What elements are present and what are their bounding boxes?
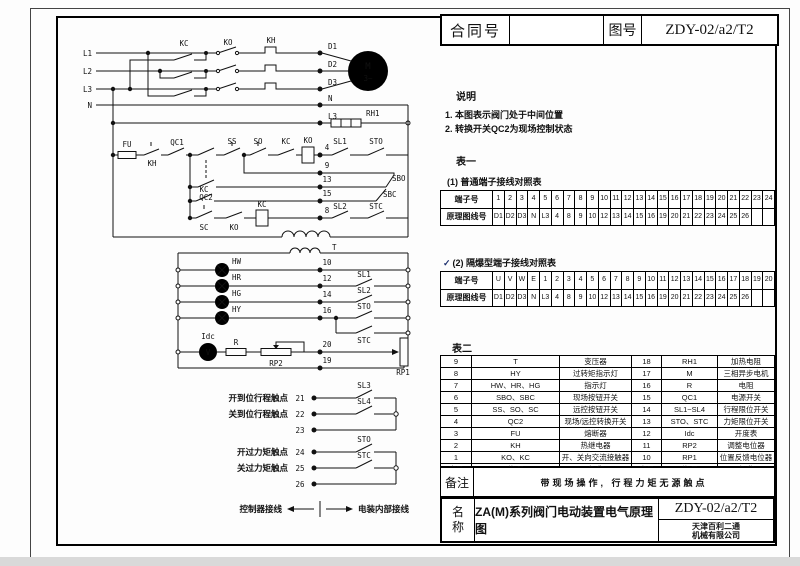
terminal-d2: D2 xyxy=(328,60,337,69)
table-cell: 19 xyxy=(704,191,716,208)
table-cell: 10 xyxy=(586,209,598,226)
label-kc-power: KC xyxy=(179,39,188,48)
terminal-26: 26 xyxy=(295,480,305,489)
table-cell: 13 xyxy=(610,290,622,307)
table-cell: 熔断器 xyxy=(559,428,631,439)
drawing-no-value: ZDY-02/a2/T2 xyxy=(642,16,777,44)
table-cell: 3 xyxy=(441,428,471,439)
table-cell: 12 xyxy=(631,428,661,439)
name-label: 名称 xyxy=(442,499,475,541)
terminal-22: 22 xyxy=(295,410,304,419)
table-cell: 21 xyxy=(727,191,739,208)
company-name: 天津百利二通 机械有限公司 xyxy=(659,520,773,541)
table-cell: 8 xyxy=(563,290,575,307)
terminal-d1: D1 xyxy=(328,42,337,51)
table-cell: 20 xyxy=(668,209,680,226)
label-rh1: RH1 xyxy=(366,109,380,118)
label-qc1: QC1 xyxy=(170,138,184,147)
label-open-travel: 开到位行程触点 xyxy=(228,393,288,403)
label-l1: L1 xyxy=(83,49,92,58)
table-cell: 17 xyxy=(680,191,692,208)
table-cell: 9 xyxy=(633,272,645,289)
terminal-table-standard: 端子号 123456789101112131415161718192021222… xyxy=(440,190,775,226)
table-cell: 现场按钮开关 xyxy=(559,392,631,403)
terminal-25: 25 xyxy=(295,464,304,473)
label-stc-lamp: STC xyxy=(357,336,371,345)
label-n: N xyxy=(87,101,92,110)
table-cell: 2 xyxy=(504,191,516,208)
component-row: 9T变压器18RH1加热电阻 xyxy=(441,356,774,367)
label-ko-contact: KO xyxy=(229,223,239,232)
drawing-sheet: L1 L2 L3 N KC KO KH D1 D2 xyxy=(0,0,800,566)
label-ss: SS xyxy=(227,137,237,146)
table-cell: 4 xyxy=(551,209,563,226)
terminal-8: 8 xyxy=(325,206,330,215)
table-cell: L3 xyxy=(539,209,551,226)
check-mark: ✓ xyxy=(443,258,451,268)
table-cell: 9 xyxy=(441,356,471,367)
table-cell: 电源开关 xyxy=(717,392,774,403)
table-cell: 10 xyxy=(598,191,610,208)
table-cell: 18 xyxy=(692,191,704,208)
table-cell: L3 xyxy=(539,290,551,307)
phase-labels: L1 L2 L3 N xyxy=(83,49,92,110)
component-row: 2KH热继电器11RP2调整电位器 xyxy=(441,439,774,451)
table-cell: 13 xyxy=(610,209,622,226)
table-cell: 16 xyxy=(715,272,727,289)
terminal-numbers-row: 123456789101112131415161718192021222324 xyxy=(493,191,774,208)
table-cell: 14 xyxy=(631,404,661,415)
table-cell: 7 xyxy=(610,272,622,289)
table-cell: 4 xyxy=(441,416,471,427)
table-cell: RP2 xyxy=(661,440,717,451)
wire-row-label: 原理图线号 xyxy=(441,209,493,226)
component-row: 7HW、HR、HG指示灯16R电阻 xyxy=(441,379,774,391)
table-cell: 18 xyxy=(739,272,751,289)
terminal-row-label: 端子号 xyxy=(441,191,493,208)
table-cell: N xyxy=(527,290,539,307)
table-cell: R xyxy=(661,380,717,391)
table-cell: 4 xyxy=(574,272,586,289)
table-cell: 行程限位开关 xyxy=(717,404,774,415)
table-cell: 16 xyxy=(668,191,680,208)
table-cell: 11 xyxy=(631,440,661,451)
label-t: T xyxy=(332,243,337,252)
table-cell: 1 xyxy=(539,272,551,289)
table-cell: 开度表 xyxy=(717,428,774,439)
table-cell: 9 xyxy=(574,209,586,226)
label-hy: HY xyxy=(232,305,242,314)
terminal-12: 12 xyxy=(322,274,331,283)
table-cell: 15 xyxy=(631,392,661,403)
table-cell: KO、KC xyxy=(471,452,559,463)
table-cell: 变压器 xyxy=(559,356,631,367)
component-row: 5SS、SO、SC远控按钮开关14SL1~SL4行程限位开关 xyxy=(441,403,774,415)
drawing-no-label: 图号 xyxy=(604,16,642,44)
label-rp1: RP1 xyxy=(396,368,410,377)
component-row: 1KO、KC开、关向交流接触器10RP1位置反馈电位器 xyxy=(441,451,774,463)
table-cell: SL1~SL4 xyxy=(661,404,717,415)
svg-text:V: V xyxy=(206,348,211,357)
table-cell: 14 xyxy=(621,290,633,307)
terminal-4: 4 xyxy=(325,143,330,152)
table1-sub2-caption: ✓(2) 隔爆型端子接线对照表 xyxy=(443,256,556,269)
label-l3: L3 xyxy=(83,85,92,94)
label-sl4: SL4 xyxy=(357,397,371,406)
table-cell: Idc xyxy=(661,428,717,439)
label-sc: SC xyxy=(199,223,208,232)
terminal-row-label: 端子号 xyxy=(441,272,493,289)
table-cell: 16 xyxy=(645,209,657,226)
label-rp2: RP2 xyxy=(269,359,283,368)
table-cell: M xyxy=(661,368,717,379)
table-cell: 远控按钮开关 xyxy=(559,404,631,415)
table-cell: 10 xyxy=(645,272,657,289)
label-sto-lamp: STO xyxy=(357,302,371,311)
label-l2: L2 xyxy=(83,67,92,76)
table-cell: 5 xyxy=(441,404,471,415)
table-cell xyxy=(762,209,774,226)
table-cell: 6 xyxy=(441,392,471,403)
label-open-torque: 开过力矩触点 xyxy=(237,447,289,457)
terminal-n: N xyxy=(328,94,333,103)
table-cell: 5 xyxy=(539,191,551,208)
table-cell: 14 xyxy=(692,272,704,289)
table-cell: 18 xyxy=(631,356,661,367)
label-r: R xyxy=(234,338,239,347)
table-cell: RP1 xyxy=(661,452,717,463)
table-cell: 8 xyxy=(441,368,471,379)
table-cell: 12 xyxy=(598,290,610,307)
table-cell: 加热电阻 xyxy=(717,356,774,367)
label-sl1-lamp: SL1 xyxy=(357,270,371,279)
label-close-travel: 关到位行程触点 xyxy=(228,409,288,419)
label-hw: HW xyxy=(232,257,242,266)
table-cell: 指示灯 xyxy=(559,380,631,391)
table-cell: 14 xyxy=(645,191,657,208)
remark-block: 备注 带现场操作, 行程力矩无源触点 xyxy=(440,467,775,497)
table-cell: 8 xyxy=(563,209,575,226)
table-cell: 13 xyxy=(633,191,645,208)
label-kc-coil: KC xyxy=(257,200,266,209)
component-row: 4QC2现场/远控转换开关13STO、STC力矩限位开关 xyxy=(441,415,774,427)
table-cell: 23 xyxy=(751,191,763,208)
svg-text:3~: 3~ xyxy=(363,74,373,83)
terminal-numbers-row: UVWE1234567891011121314151617181920 xyxy=(493,272,774,289)
title-header: 合同号 图号 ZDY-02/a2/T2 xyxy=(440,14,779,46)
table-cell: 9 xyxy=(586,191,598,208)
notes-title: 说明 xyxy=(456,88,476,103)
table-cell: 电阻 xyxy=(717,380,774,391)
terminal-19: 19 xyxy=(322,356,331,365)
terminal-table-explosion-proof: 端子号 UVWE1234567891011121314151617181920 … xyxy=(440,271,775,307)
table-cell: STO、STC xyxy=(661,416,717,427)
table-cell: 25 xyxy=(727,209,739,226)
table-cell: FU xyxy=(471,428,559,439)
table-cell: 15 xyxy=(657,191,669,208)
table-cell: 22 xyxy=(739,191,751,208)
table-cell: SBO、SBC xyxy=(471,392,559,403)
table-cell xyxy=(751,290,763,307)
label-kc-contact: KC xyxy=(281,137,290,146)
label-hr: HR xyxy=(232,273,242,282)
table-cell: 23 xyxy=(704,290,716,307)
table-cell: 6 xyxy=(551,191,563,208)
table-cell: 15 xyxy=(633,290,645,307)
table-cell: 14 xyxy=(621,209,633,226)
table-cell: 现场/远控转换开关 xyxy=(559,416,631,427)
table-cell: 19 xyxy=(751,272,763,289)
schematic-circuit: L1 L2 L3 N KC KO KH D1 D2 xyxy=(56,16,434,544)
table-cell: 开、关向交流接触器 xyxy=(559,452,631,463)
contract-value xyxy=(510,16,604,44)
table-cell: 7 xyxy=(563,191,575,208)
label-internal-wiring: 电装内部接线 xyxy=(358,504,410,514)
table-cell: 12 xyxy=(598,209,610,226)
wire-row-label: 原理图线号 xyxy=(441,290,493,307)
table-cell: 5 xyxy=(586,272,598,289)
page-edge-strip xyxy=(0,557,800,566)
control-circuit: FU KH QC1 QC2 SS SO KC KO 4 SL1 STO xyxy=(111,87,408,253)
indication-circuit: HW 10 HR 12 SL1 HG 14 SL2 xyxy=(176,253,410,377)
table-cell: RH1 xyxy=(661,356,717,367)
label-so: SO xyxy=(253,137,263,146)
table-cell: 19 xyxy=(657,290,669,307)
table-cell: 12 xyxy=(621,191,633,208)
external-contacts: 开到位行程触点 关到位行程触点 开过力矩触点 关过力矩触点 21 22 23 2… xyxy=(228,381,398,489)
table-cell: 23 xyxy=(704,209,716,226)
component-row: 3FU熔断器12Idc开度表 xyxy=(441,427,774,439)
label-stc-control: STC xyxy=(369,202,383,211)
remark-text: 带现场操作, 行程力矩无源触点 xyxy=(474,468,774,496)
label-kh-power: KH xyxy=(266,36,276,45)
terminal-24: 24 xyxy=(295,448,305,457)
note-item-1: 1. 本图表示阀门处于中间位置 xyxy=(445,108,563,121)
table-cell: 13 xyxy=(631,416,661,427)
table-cell: HW、HR、HG xyxy=(471,380,559,391)
table-cell: 过转矩指示灯 xyxy=(559,368,631,379)
label-fu: FU xyxy=(122,140,131,149)
table-cell: 21 xyxy=(680,209,692,226)
potentiometer-rp1: RP1 xyxy=(396,338,410,377)
drawing-number: ZDY-02/a2/T2 xyxy=(659,499,773,520)
table-cell: 17 xyxy=(727,272,739,289)
table-cell: 19 xyxy=(657,209,669,226)
terminal-20: 20 xyxy=(322,340,332,349)
table-cell: 2 xyxy=(441,440,471,451)
table-cell: T xyxy=(471,356,559,367)
table-cell: 16 xyxy=(645,290,657,307)
motor-icon: M 3~ xyxy=(348,51,388,91)
table1-title: 表一 xyxy=(456,153,476,168)
wiring-boundary-legend: 控制器接线 电装内部接线 xyxy=(239,501,409,517)
table-cell: 热继电器 xyxy=(559,440,631,451)
table-cell: 11 xyxy=(657,272,669,289)
table-cell: 力矩限位开关 xyxy=(717,416,774,427)
table-cell: 11 xyxy=(610,191,622,208)
table2-title: 表二 xyxy=(452,340,472,355)
table-cell: 10 xyxy=(631,452,661,463)
terminal-14: 14 xyxy=(322,290,332,299)
table-cell: 15 xyxy=(704,272,716,289)
transformer-icon: T xyxy=(113,231,408,253)
table-cell: 26 xyxy=(739,290,751,307)
table-cell: 4 xyxy=(527,191,539,208)
label-kc-aux: KC xyxy=(199,185,208,194)
table-cell: 25 xyxy=(727,290,739,307)
table-cell: N xyxy=(527,209,539,226)
label-sl2-control: SL2 xyxy=(333,202,347,211)
table-cell: E xyxy=(527,272,539,289)
table-cell: 15 xyxy=(633,209,645,226)
component-list-table: 9T变压器18RH1加热电阻 8HY过转矩指示灯17M三相异步电机 7HW、HR… xyxy=(440,355,775,467)
table-cell: D3 xyxy=(516,209,528,226)
table-cell: 7 xyxy=(441,380,471,391)
table-cell: 17 xyxy=(631,368,661,379)
table-cell xyxy=(751,209,763,226)
table-cell: 6 xyxy=(598,272,610,289)
label-sl1-control: SL1 xyxy=(333,137,347,146)
table-cell: U xyxy=(493,272,504,289)
table-cell: QC2 xyxy=(471,416,559,427)
terminal-l3: L3 xyxy=(328,112,337,121)
table-cell: 26 xyxy=(739,209,751,226)
note-item-2: 2. 转换开关QC2为现场控制状态 xyxy=(445,122,573,135)
table-cell: 20 xyxy=(668,290,680,307)
table-cell: 1 xyxy=(441,452,471,463)
table-cell: 24 xyxy=(715,209,727,226)
label-sl2-lamp: SL2 xyxy=(357,286,371,295)
label-hg: HG xyxy=(232,289,242,298)
table-cell: HY xyxy=(471,368,559,379)
table-cell: QC1 xyxy=(661,392,717,403)
table-cell: 20 xyxy=(715,191,727,208)
component-row: 6SBO、SBC现场按钮开关15QC1电源开关 xyxy=(441,391,774,403)
label-ko-power: KO xyxy=(223,38,233,47)
table-cell: 三相异步电机 xyxy=(717,368,774,379)
table-cell: SS、SO、SC xyxy=(471,404,559,415)
label-kh-contact: KH xyxy=(147,159,157,168)
table-cell: 3 xyxy=(516,191,528,208)
table-cell: 24 xyxy=(762,191,774,208)
terminal-10: 10 xyxy=(322,258,332,267)
table-cell: D3 xyxy=(516,290,528,307)
label-ko-coil: KO xyxy=(303,136,313,145)
label-idc: Idc xyxy=(201,332,215,341)
label-sbo: SBO xyxy=(392,174,406,183)
table-cell: 22 xyxy=(692,209,704,226)
table-cell: 2 xyxy=(551,272,563,289)
component-row: 8HY过转矩指示灯17M三相异步电机 xyxy=(441,367,774,379)
table-cell: 13 xyxy=(680,272,692,289)
label-sl3: SL3 xyxy=(357,381,371,390)
table-cell: KH xyxy=(471,440,559,451)
svg-text:M: M xyxy=(365,62,371,72)
table-cell: 10 xyxy=(586,290,598,307)
label-stc-ext: STC xyxy=(357,451,371,460)
label-sto-ext: STO xyxy=(357,435,371,444)
table-cell xyxy=(762,290,774,307)
table-cell: 8 xyxy=(621,272,633,289)
table-cell: 8 xyxy=(574,191,586,208)
table-cell: 4 xyxy=(551,290,563,307)
terminal-21: 21 xyxy=(295,394,304,403)
table-cell: 22 xyxy=(692,290,704,307)
remark-label: 备注 xyxy=(441,468,474,496)
terminal-16: 16 xyxy=(322,306,332,315)
table-cell: 位置反馈电位器 xyxy=(717,452,774,463)
table-cell: W xyxy=(516,272,528,289)
table-cell: 21 xyxy=(680,290,692,307)
label-sbc: SBC xyxy=(383,190,397,199)
contract-label: 合同号 xyxy=(442,16,510,44)
title-block: 名称 ZA(M)系列阀门电动装置电气原理图 ZDY-02/a2/T2 天津百利二… xyxy=(440,497,775,543)
wire-numbers-row: D1D2D3NL34891012131415161920212223242526 xyxy=(493,209,774,226)
table-cell: 调整电位器 xyxy=(717,440,774,451)
table-cell: 1 xyxy=(493,191,504,208)
potentiometer-rp2: RP2 xyxy=(261,342,304,368)
opening-meter-icon: V Idc xyxy=(199,332,217,361)
table-cell: D1 xyxy=(493,290,504,307)
terminal-23: 23 xyxy=(295,426,304,435)
label-controller-wiring: 控制器接线 xyxy=(239,504,282,514)
table-cell: 20 xyxy=(762,272,774,289)
table-cell: 12 xyxy=(668,272,680,289)
table-cell: D1 xyxy=(493,209,504,226)
table-cell: D2 xyxy=(504,290,516,307)
table1-sub1-caption: (1) 普通端子接线对照表 xyxy=(447,175,542,188)
table-cell: V xyxy=(504,272,516,289)
label-close-torque: 关过力矩触点 xyxy=(237,463,289,473)
terminal-13: 13 xyxy=(322,175,331,184)
table-cell: 16 xyxy=(631,380,661,391)
table-cell: D2 xyxy=(504,209,516,226)
table-cell: 9 xyxy=(574,290,586,307)
drawing-name: ZA(M)系列阀门电动装置电气原理图 xyxy=(475,499,659,541)
table-cell: 3 xyxy=(563,272,575,289)
terminal-9: 9 xyxy=(325,161,330,170)
terminal-15: 15 xyxy=(322,189,331,198)
label-sto-control: STO xyxy=(369,137,383,146)
table-cell: 24 xyxy=(715,290,727,307)
wire-numbers-row: D1D2D3NL34891012131415161920212223242526 xyxy=(493,290,774,307)
